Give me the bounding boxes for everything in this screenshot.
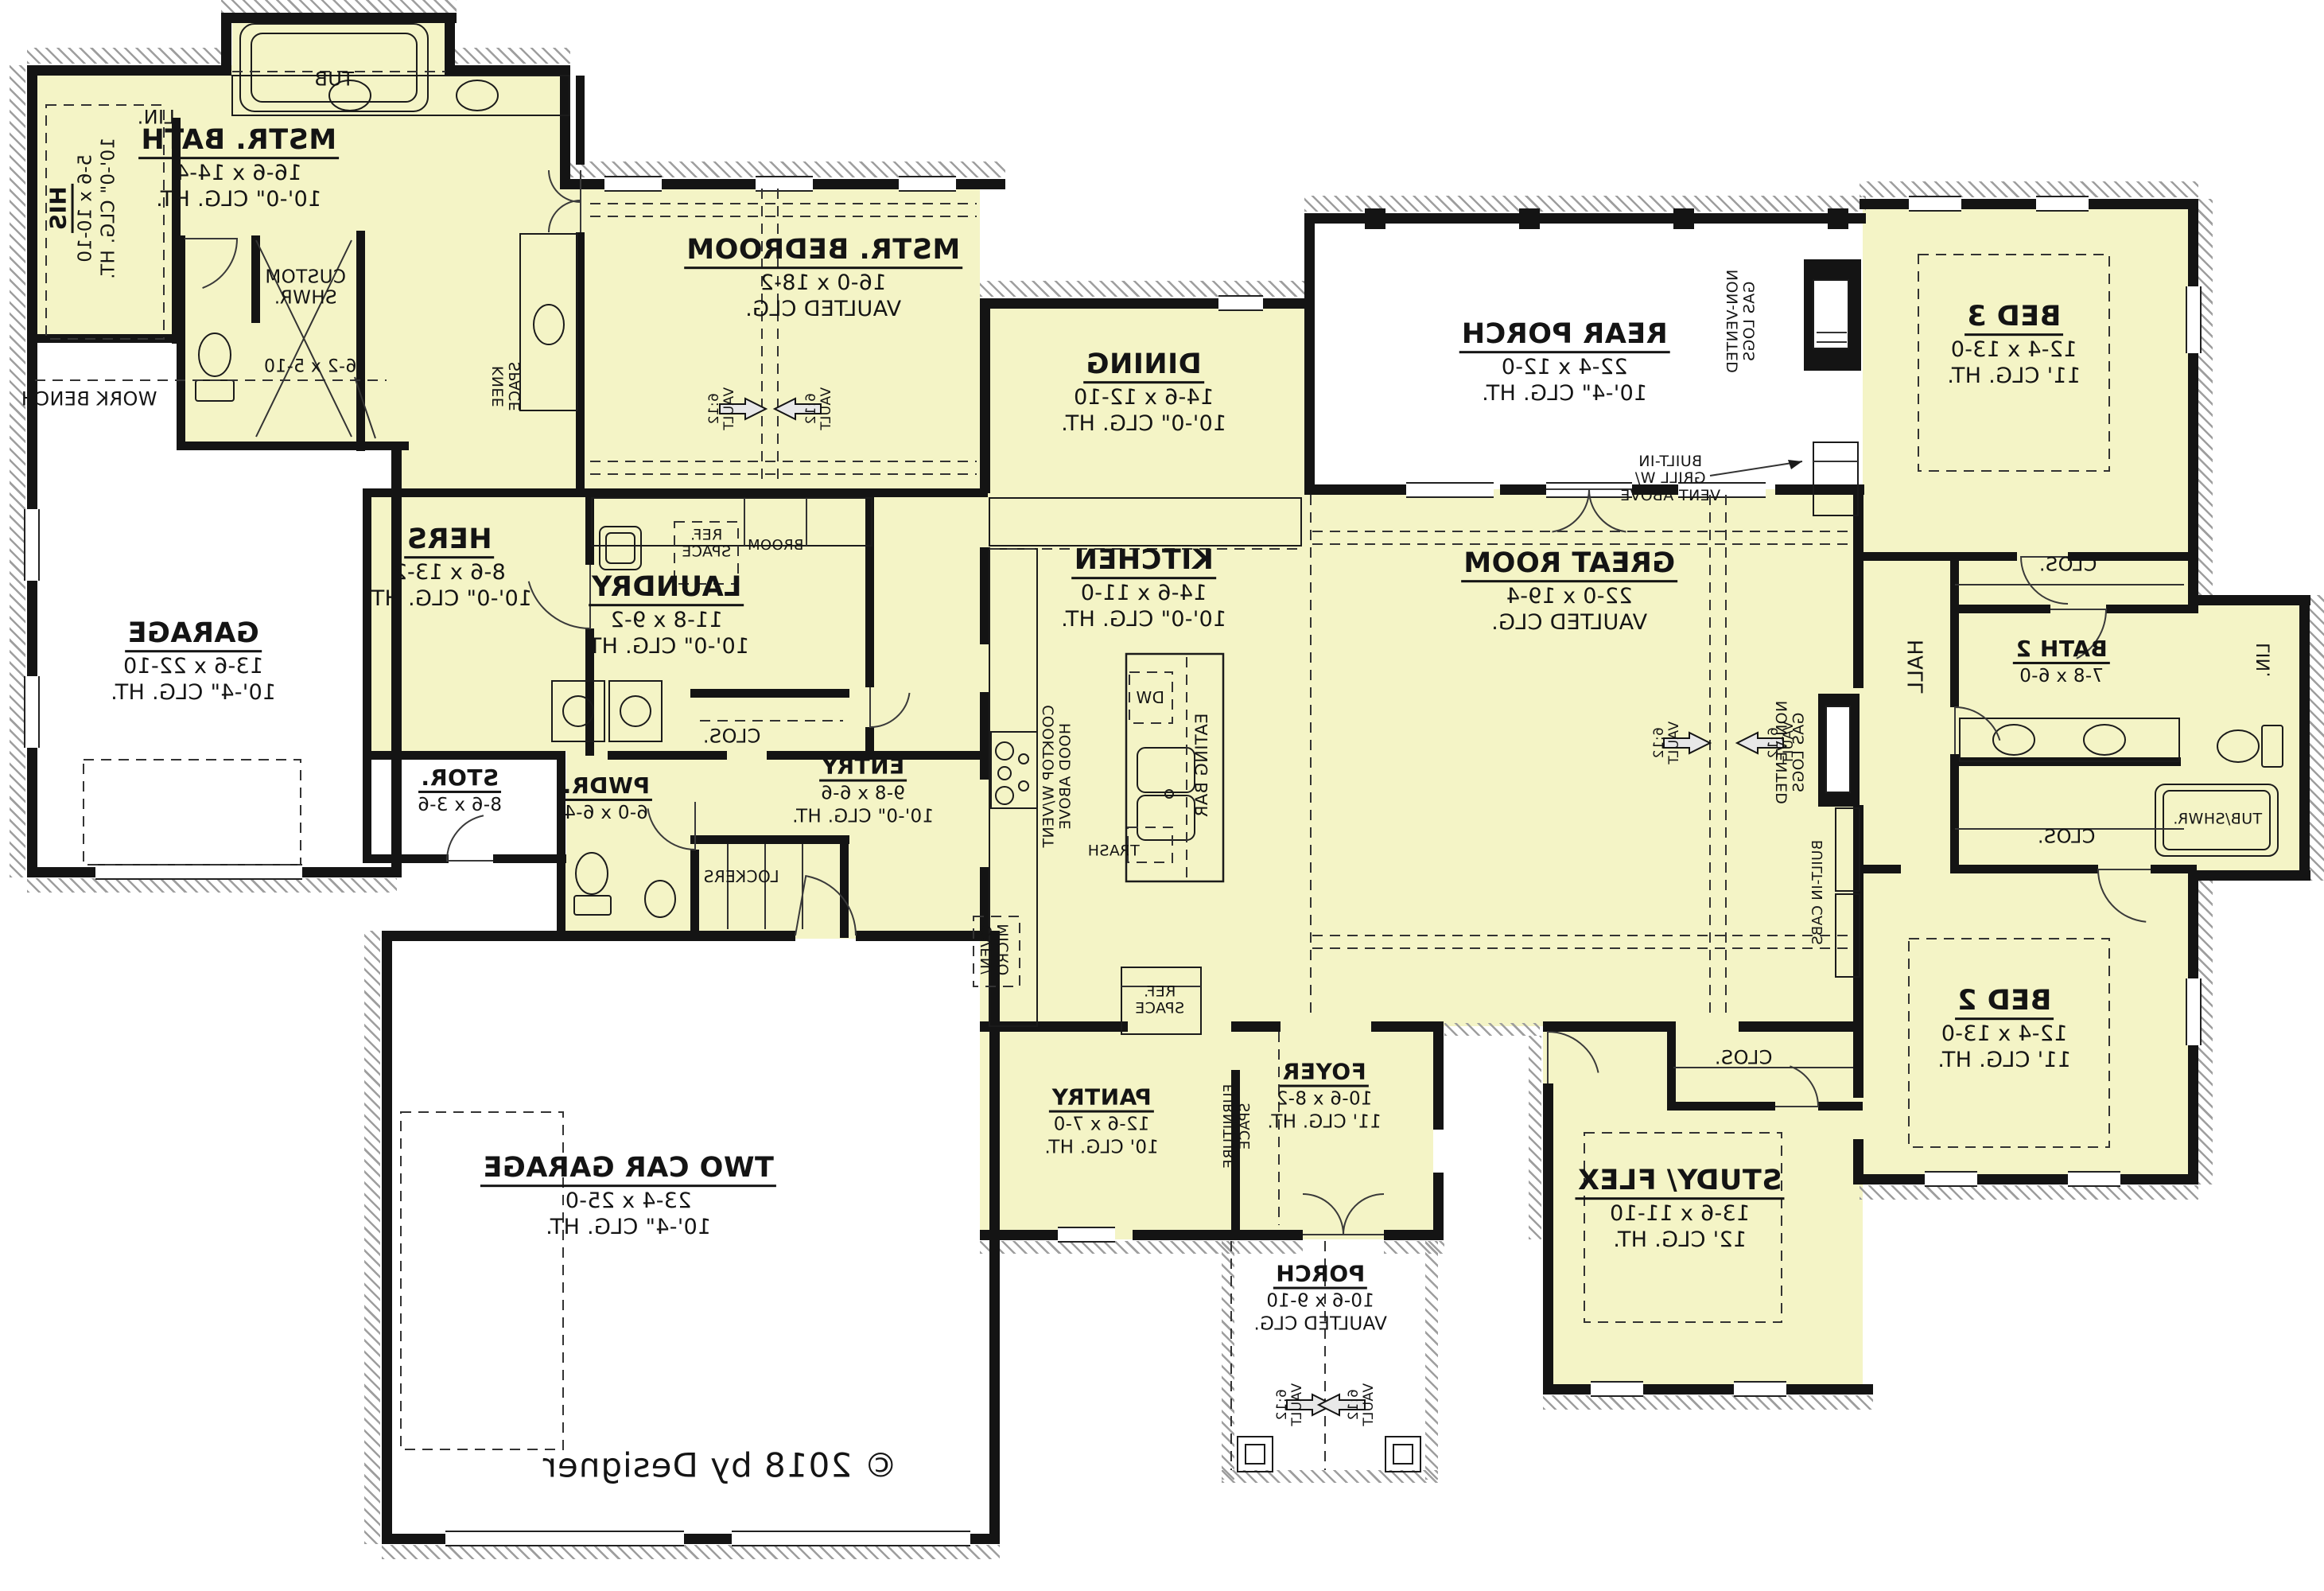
room-ceiling-height: VAULTED CLG. <box>684 298 962 322</box>
room-label-foyer: FOYER10-6 x 8-211' CLG. HT. <box>1267 1060 1382 1134</box>
room-ceiling-height: VAULTED CLG. <box>1253 1315 1387 1336</box>
room-dimensions: 8-6 x 13-2 <box>367 561 532 585</box>
room-label-two-car: TWO CAR GARAGE23-4 x 25-010'-4" CLG. HT. <box>480 1153 776 1240</box>
room-name: PANTRY <box>1049 1085 1153 1113</box>
room-dimensions: 10-6 x 9-10 <box>1253 1292 1387 1313</box>
room-name: TWO CAR GARAGE <box>480 1153 776 1187</box>
room-name: REAR PORCH <box>1459 319 1669 353</box>
room-dimensions: 14-6 x 11-0 <box>1061 582 1226 605</box>
annotation-knee-space: KNEE SPACE <box>491 362 525 411</box>
room-dimensions: 16-6 x 14-4 <box>138 161 339 185</box>
room-ceiling-height: 10'-0" CLG. HT. <box>367 588 532 612</box>
annotation-furniture: FURNITURE SPACE <box>1222 1084 1253 1169</box>
room-dimensions: 9-8 x 6-6 <box>792 784 934 805</box>
room-ceiling-height: 10'-4" CLG. HT. <box>480 1216 776 1240</box>
room-label-his: HIS5-6 x 10-1010'-0" CLG. HT. <box>46 138 120 279</box>
floor-plan-canvas: © 2018 by Designer MSTR. BATH16-6 x 14-4… <box>0 0 2324 1591</box>
room-dimensions: 22-4 x 12-0 <box>1459 356 1669 379</box>
annotation-shwr-dims: 6-2 x 5-10 <box>264 358 357 378</box>
room-dimensions: 12-4 x 13-0 <box>1937 1022 2071 1046</box>
room-name: BED 3 <box>1965 301 2064 336</box>
annotation-custom-shwr: CUSTOM SHWR. <box>265 267 346 309</box>
annotation-eating-bar: EATING BAR <box>1193 713 1212 817</box>
room-ceiling-height: 10'-0" CLG. HT. <box>138 189 339 212</box>
annotation-trash: TRASH <box>1087 842 1139 859</box>
room-label-kitchen: KITCHEN14-6 x 11-010'-0" CLG. HT. <box>1061 545 1226 632</box>
room-dimensions: 16-0 x 18-2 <box>684 271 962 295</box>
room-label-great-room: GREAT ROOM22-0 x 19-4VAULTED CLG. <box>1461 548 1677 636</box>
room-dimensions: 12-6 x 7-0 <box>1044 1115 1159 1136</box>
room-label-entry: ENTRY9-8 x 6-610'-0" CLG. HT. <box>792 754 934 828</box>
room-label-laundry: LAUNDRY11-8 x 9-210'-0" CLG. HT. <box>584 572 749 659</box>
room-dimensions: 8-6 x 3-6 <box>418 795 502 816</box>
copyright-note: © 2018 by Designer <box>542 1446 898 1485</box>
room-name: PWDR. <box>560 773 652 801</box>
room-ceiling-height: 10'-4" CLG. HT. <box>1459 383 1669 407</box>
room-dimensions: 5-6 x 10-10 <box>76 138 97 279</box>
room-dimensions: 23-4 x 25-0 <box>480 1189 776 1213</box>
room-label-pantry: PANTRY12-6 x 7-010' CLG. HT. <box>1044 1085 1159 1159</box>
room-dimensions: 6-0 x 6-4 <box>560 803 652 824</box>
room-label-bed2: BED 212-4 x 13-011' CLG. HT. <box>1937 986 2071 1073</box>
room-name: FOYER <box>1280 1060 1368 1087</box>
room-name: MSTR. BATH <box>138 125 339 159</box>
room-ceiling-height: 11' CLG. HT. <box>1267 1113 1382 1134</box>
room-ceiling-height: 10'-0" CLG. HT. <box>99 138 120 279</box>
vault-slope-note: 6:12 VAULT <box>804 387 834 430</box>
annotation-tub-shwr: TUB/SHWR. <box>2173 811 2262 827</box>
room-name: MSTR. BEDROOM <box>684 235 962 269</box>
annotation-built-in-cabs: BUILT-IN CABS <box>1810 840 1826 945</box>
room-label-hers: HERS8-6 x 13-210'-0" CLG. HT. <box>367 524 532 612</box>
room-dimensions: 10-6 x 8-2 <box>1267 1090 1382 1111</box>
annotation-clos-bed2: CLOS. <box>2037 827 2095 848</box>
room-ceiling-height: 10'-0" CLG. HT. <box>1061 413 1226 437</box>
room-name: STOR. <box>418 765 501 793</box>
room-name: DINING <box>1083 349 1203 383</box>
room-label-porch: PORCH10-6 x 9-10VAULTED CLG. <box>1253 1262 1387 1336</box>
annotation-dw: DW <box>1136 689 1164 706</box>
annotation-grill: BUILT-IN GRILL W/ VENT ABOVE <box>1620 453 1720 504</box>
room-name: STUDY/ FLEX <box>1576 1165 1785 1200</box>
annotation-gas-logs-porch: NON-VENTED GAS LOGS <box>1725 270 1759 374</box>
annotation-work-bench: WORK BENCH <box>21 389 157 410</box>
room-dimensions: 22-0 x 19-4 <box>1461 585 1677 609</box>
annotation-oven-micro: OVEN/ MICRO <box>979 924 1013 975</box>
room-label-garage: GARAGE13-6 x 22-1010'-4" CLG. HT. <box>111 618 276 706</box>
room-dimensions: 14-6 x 12-10 <box>1061 386 1226 410</box>
annotation-hall: HALL <box>1905 640 1928 694</box>
vault-slope-note: 6:12 VAULT <box>1347 1383 1377 1426</box>
room-name: GREAT ROOM <box>1461 548 1677 582</box>
room-ceiling-height: 10'-0" CLG. HT. <box>584 636 749 659</box>
vault-slope-note: 6:12 VAULT <box>1652 722 1682 764</box>
plan-linework <box>0 0 2324 1591</box>
room-label-dining: DINING14-6 x 12-1010'-0" CLG. HT. <box>1061 349 1226 437</box>
annotation-broom: BROOM <box>748 538 804 554</box>
annotation-ref-laundry: REF. SPACE <box>682 527 731 562</box>
room-ceiling-height: VAULTED CLG. <box>1461 612 1677 636</box>
annotation-clos-entry: CLOS. <box>702 726 760 748</box>
room-dimensions: 12-4 x 13-0 <box>1947 338 2081 362</box>
room-dimensions: 13-6 x 22-10 <box>111 655 276 679</box>
room-name: LAUNDRY <box>589 572 744 606</box>
vault-slope-note: 6:12 VAULT <box>1275 1383 1305 1426</box>
annotation-lin2: LIN. <box>2256 643 2275 678</box>
annotation-ref-kitchen: REF. SPACE <box>1135 984 1184 1018</box>
room-label-bath2: BATH 27-8 x 6-0 <box>2013 636 2110 687</box>
room-dimensions: 13-6 x 11-10 <box>1576 1202 1785 1226</box>
annotation-lin1: LIN. <box>137 107 175 129</box>
vault-slope-note: 6:12 VAULT <box>707 387 737 430</box>
room-ceiling-height: 10'-0" CLG. HT. <box>1061 609 1226 632</box>
annotation-tub: TUB <box>314 69 354 91</box>
room-label-stor: STOR.8-6 x 3-6 <box>418 765 502 816</box>
room-name: HERS <box>404 524 494 558</box>
room-label-study: STUDY/ FLEX13-6 x 11-1012' CLG. HT. <box>1576 1165 1785 1253</box>
annotation-clos-study: CLOS. <box>1714 1048 1772 1069</box>
room-name: PORCH <box>1273 1262 1367 1290</box>
annotation-cooktop: COOKTOP W/VENT HOOD ABOVE <box>1041 705 1075 848</box>
room-ceiling-height: 10' CLG. HT. <box>1044 1138 1159 1159</box>
room-label-mstr-bath: MSTR. BATH16-6 x 14-410'-0" CLG. HT. <box>138 125 339 212</box>
annotation-clos-bed3: CLOS. <box>2038 554 2097 576</box>
room-ceiling-height: 10'-4" CLG. HT. <box>111 682 276 706</box>
annotation-lockers: LOCKERS <box>703 868 779 885</box>
room-ceiling-height: 11' CLG. HT. <box>1947 365 2081 389</box>
room-name: HIS <box>46 184 74 233</box>
room-label-rear-porch: REAR PORCH22-4 x 12-010'-4" CLG. HT. <box>1459 319 1669 407</box>
room-name: GARAGE <box>125 618 262 652</box>
vault-slope-note: 6:12 VAULT <box>1766 722 1797 764</box>
room-label-pwdr: PWDR.6-0 x 6-4 <box>560 773 652 824</box>
room-name: ENTRY <box>819 754 907 782</box>
room-label-mstr-bedroom: MSTR. BEDROOM16-0 x 18-2VAULTED CLG. <box>684 235 962 322</box>
room-ceiling-height: 12' CLG. HT. <box>1576 1229 1785 1253</box>
room-dimensions: 11-8 x 9-2 <box>584 609 749 632</box>
room-ceiling-height: 10'-0" CLG. HT. <box>792 807 934 828</box>
room-label-bed3: BED 312-4 x 13-011' CLG. HT. <box>1947 301 2081 389</box>
room-name: KITCHEN <box>1071 545 1216 579</box>
room-name: BED 2 <box>1955 986 2054 1020</box>
room-name: BATH 2 <box>2013 636 2110 664</box>
room-dimensions: 7-8 x 6-0 <box>2013 667 2110 687</box>
room-ceiling-height: 11' CLG. HT. <box>1937 1049 2071 1073</box>
